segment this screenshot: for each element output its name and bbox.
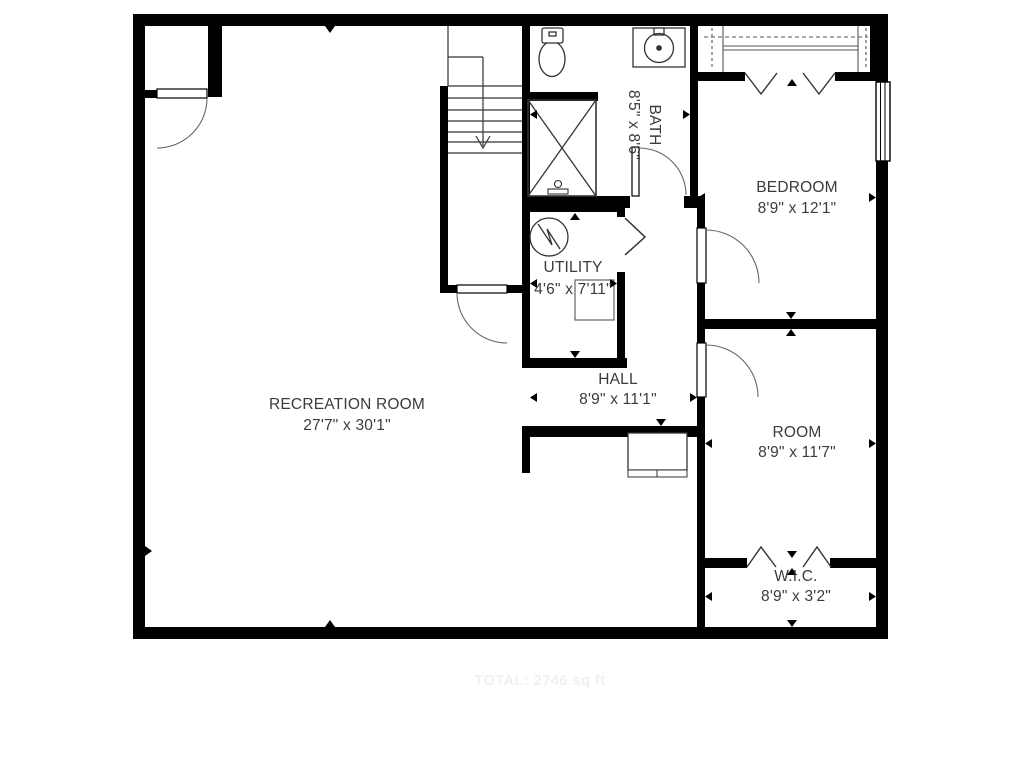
door-swing-arc (706, 230, 759, 283)
room-name: UTILITY (534, 257, 612, 279)
wall (697, 72, 745, 81)
room-dimensions: 8'5" x 8'6" (623, 90, 644, 160)
wall (703, 319, 888, 329)
room-label-room: ROOM 8'9" x 11'7" (758, 423, 836, 463)
room-label-bath: BATH 8'5" x 8'6" (623, 90, 665, 160)
tick-marker (656, 419, 666, 426)
room-name: RECREATION ROOM (269, 394, 425, 415)
shower-x-line (528, 100, 596, 196)
room-dimensions: 4'6" x 7'11" (534, 279, 612, 301)
room-dimensions: 8'9" x 12'1" (756, 198, 838, 219)
door-panel (697, 343, 706, 397)
wall (522, 358, 627, 368)
closet-shelving (704, 26, 868, 72)
wall (208, 26, 222, 97)
wall (690, 26, 698, 207)
bifold-door-icon (803, 547, 831, 567)
tick-marker (570, 351, 580, 358)
room-dimensions: 8'9" x 3'2" (761, 587, 831, 607)
wall (697, 283, 705, 343)
tick-marker (570, 213, 580, 220)
tick-marker (786, 329, 796, 336)
tick-marker (869, 592, 876, 601)
wall (440, 285, 457, 293)
shower-valve-bar (548, 189, 568, 194)
toilet-button (549, 32, 556, 36)
toilet-bowl (539, 42, 565, 77)
cabinet-icon (628, 433, 687, 477)
walls (133, 14, 888, 639)
door-swing-arc (157, 98, 207, 148)
tick-marker (145, 546, 152, 556)
room-name: HALL (579, 370, 657, 390)
tick-marker (690, 393, 697, 402)
stairs (448, 26, 522, 153)
wall (522, 437, 530, 473)
wall (705, 558, 747, 568)
tick-marker (325, 26, 335, 33)
shower-valve (555, 181, 562, 188)
total-area-watermark: TOTAL: 2746 sq ft (474, 673, 605, 689)
bifold-door-icon (747, 547, 776, 567)
room-label-recreation: RECREATION ROOM 27'7" x 30'1" (269, 394, 425, 436)
floor-plan-drawing (0, 0, 1024, 768)
room-name: ROOM (758, 423, 836, 443)
tick-marker (787, 620, 797, 627)
room-label-hall: HALL 8'9" x 11'1" (579, 370, 657, 410)
toilet-icon (539, 28, 565, 77)
tick-marker (705, 439, 712, 448)
door-panel (157, 89, 207, 98)
bifold-door-icon (745, 73, 777, 94)
door-panel (457, 285, 507, 293)
cabinet-body (628, 433, 687, 470)
tick-marker (683, 110, 690, 119)
sink-drain (657, 46, 661, 50)
wall (835, 72, 871, 81)
bifold-door-icon (803, 73, 835, 94)
tick-marker (787, 79, 797, 86)
tick-marker (869, 193, 876, 202)
tick-marker (705, 592, 712, 601)
tick-marker (786, 312, 796, 319)
water-heater-icon (530, 218, 568, 256)
tick-marker (530, 393, 537, 402)
room-label-utility: UTILITY 4'6" x 7'11" (534, 257, 612, 301)
floor-plan: RECREATION ROOM 27'7" x 30'1" BATH 8'5" … (0, 0, 1024, 768)
wall (870, 26, 888, 81)
wall (133, 14, 888, 26)
room-dimensions: 8'9" x 11'1" (579, 390, 657, 410)
open-door-chevron-icon (625, 218, 645, 255)
door-swing-arc (457, 293, 507, 343)
room-name: W.I.C. (761, 567, 831, 587)
room-dimensions: 8'9" x 11'7" (758, 443, 836, 463)
tick-marker (325, 620, 335, 627)
room-label-wic: W.I.C. 8'9" x 3'2" (761, 567, 831, 607)
tick-marker (869, 439, 876, 448)
shower-icon (528, 100, 596, 196)
room-name: BEDROOM (756, 177, 838, 198)
door-swing-arc (706, 345, 758, 397)
wall (133, 14, 145, 639)
wall (133, 627, 888, 639)
window-icon (876, 82, 890, 161)
wall (528, 204, 618, 212)
tick-marker (530, 110, 537, 119)
tick-marker (787, 551, 797, 558)
wall (830, 558, 878, 568)
wall (617, 196, 625, 217)
water-heater-zigzag (538, 224, 560, 249)
window-frame (876, 82, 890, 161)
door-panel (697, 228, 706, 283)
room-name: BATH (644, 90, 665, 160)
wall (617, 272, 625, 368)
wall (440, 86, 448, 293)
room-dimensions: 27'7" x 30'1" (269, 415, 425, 436)
sink-icon (633, 28, 685, 67)
room-label-bedroom: BEDROOM 8'9" x 12'1" (756, 177, 838, 219)
wall (697, 197, 705, 228)
